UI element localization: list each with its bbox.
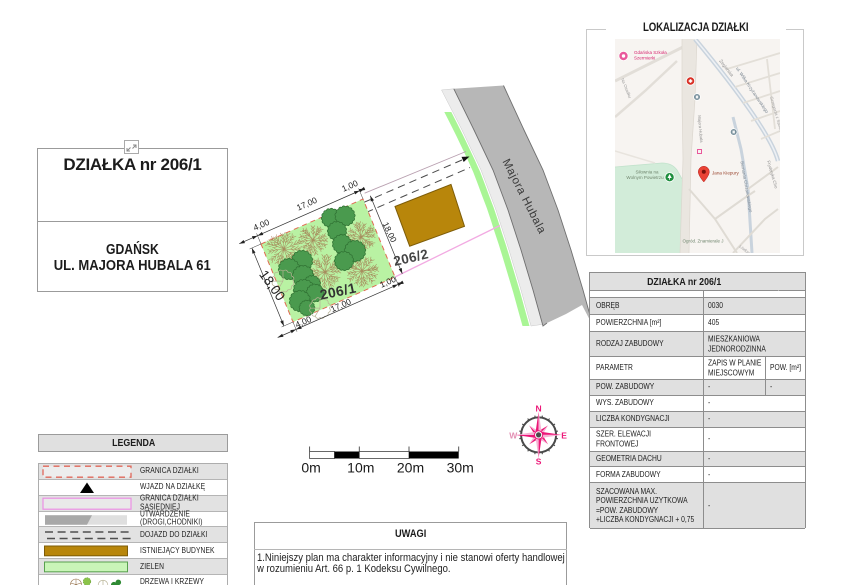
svg-text:18,00: 18,00 <box>381 220 399 244</box>
svg-text:Szermierki: Szermierki <box>634 56 655 61</box>
svg-text:Gdańska Szkoła: Gdańska Szkoła <box>634 50 667 55</box>
svg-text:Siłownia na: Siłownia na <box>635 170 659 175</box>
svg-text:S: S <box>536 456 542 466</box>
svg-text:N: N <box>536 404 542 414</box>
svg-text:10m: 10m <box>347 460 374 476</box>
svg-text:E: E <box>561 430 567 440</box>
svg-text:Ogród. Znamierale J: Ogród. Znamierale J <box>682 239 723 244</box>
svg-text:206/2: 206/2 <box>392 246 430 269</box>
svg-text:Wolnym Powietrzu: Wolnym Powietrzu <box>626 175 664 180</box>
svg-text:W: W <box>509 430 518 440</box>
svg-text:0m: 0m <box>301 460 320 476</box>
svg-text:4,00: 4,00 <box>252 217 271 233</box>
svg-text:30m: 30m <box>447 460 474 476</box>
svg-text:20m: 20m <box>397 460 424 476</box>
svg-text:Jana Kiepury: Jana Kiepury <box>712 171 740 176</box>
